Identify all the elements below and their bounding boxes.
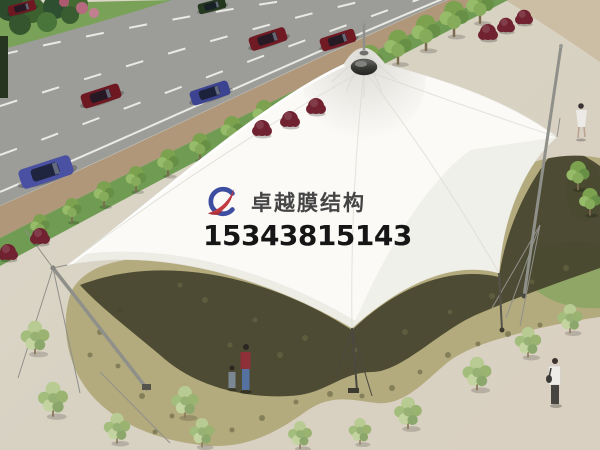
watermark: 卓越膜结构 15343815143 xyxy=(203,184,407,250)
shrub xyxy=(478,24,498,43)
rendering-canvas: 卓越膜结构 15343815143 xyxy=(0,0,600,450)
pedestrian-bottom-right xyxy=(546,358,562,408)
watermark-phone: 15343815143 xyxy=(203,221,407,250)
canopy-peak-cap xyxy=(351,59,377,75)
sidewalk-corner xyxy=(505,0,600,62)
pedestrian-top-right xyxy=(576,103,587,141)
watermark-company: 卓越膜结构 xyxy=(251,187,366,217)
shrub xyxy=(497,18,515,35)
